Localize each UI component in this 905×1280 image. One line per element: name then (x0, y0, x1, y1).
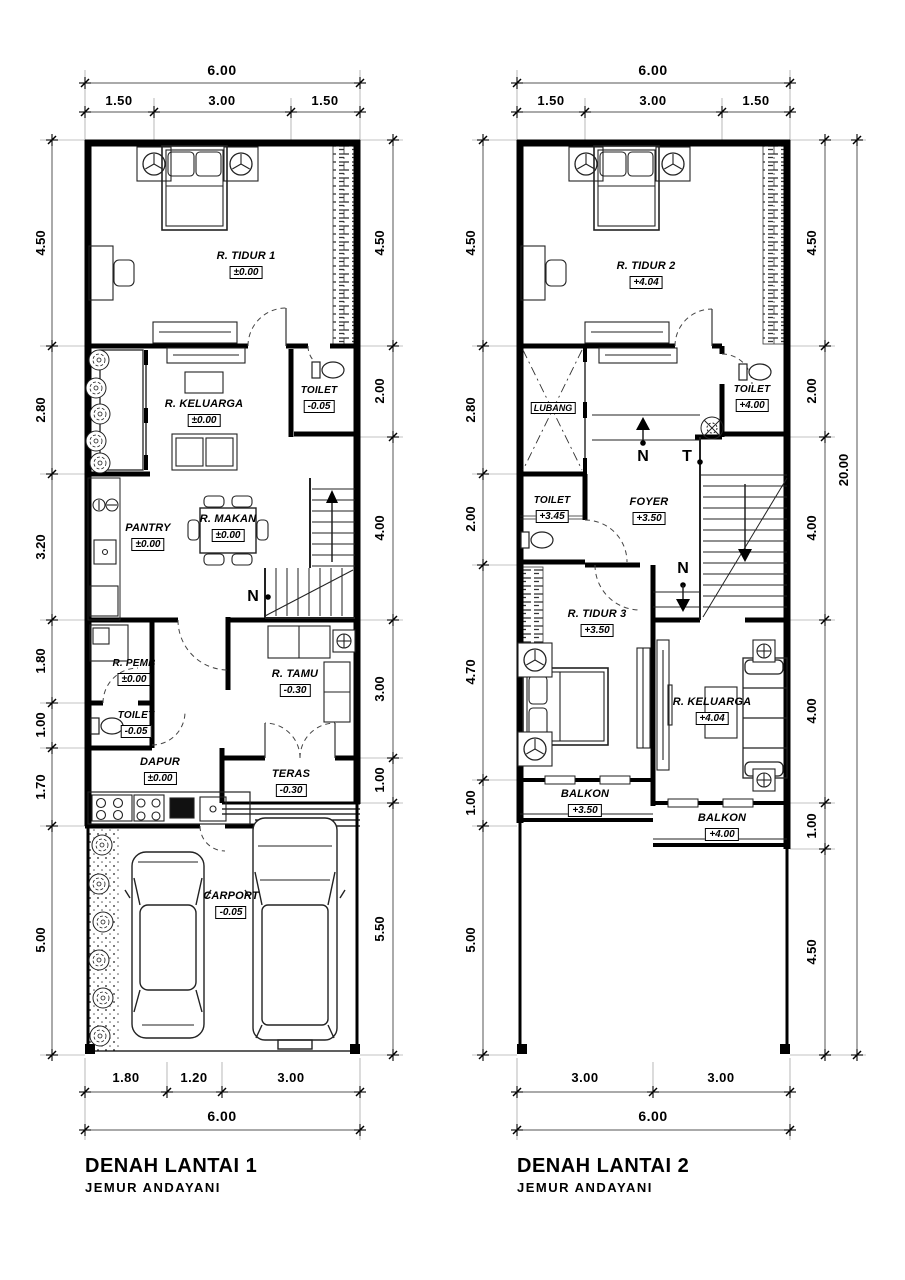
dim-label: 4.00 (373, 496, 387, 560)
kitchen-counter (88, 792, 250, 824)
up-arrow (636, 417, 650, 430)
room-label-tidur2: R. TIDUR 2 +4.04 (617, 260, 676, 290)
room-label-balkon-kanan: BALKON +4.00 (698, 812, 746, 842)
room-label-tidur3: R. TIDUR 3 +3.50 (568, 608, 627, 638)
dim-label: 6.00 (621, 1108, 685, 1124)
car-sedan-icon (125, 852, 211, 1038)
dim-label: 1.50 (519, 93, 583, 108)
dim-label: 3.00 (373, 657, 387, 721)
shrub-icon (92, 835, 112, 855)
dim-label: 1.50 (87, 93, 151, 108)
dim-label: 1.80 (34, 629, 48, 693)
room-label-makan: R. MAKAN ±0.00 (200, 513, 257, 543)
dim-label: 4.50 (805, 211, 819, 275)
plan2-title: DENAH LANTAI 2 (517, 1155, 689, 1178)
dim-label: 1.80 (94, 1070, 158, 1085)
plant-icon (89, 350, 109, 370)
room-label-toilet-bawah: TOILET -0.05 (118, 710, 155, 739)
plan1-stairs (265, 478, 355, 618)
room-label-carport: CARPORT -0.05 (203, 890, 259, 920)
speaker-icon (753, 640, 775, 662)
wardrobe-icon (585, 322, 677, 363)
plan1-title: DENAH LANTAI 1 (85, 1155, 257, 1178)
chair-icon (114, 260, 134, 286)
room-label-dapur: DAPUR ±0.00 (140, 756, 180, 786)
room-label-pemb: R. PEMB ±0.00 (112, 658, 155, 687)
dim-label: 6.00 (621, 62, 685, 78)
room-label-foyer: FOYER +3.50 (630, 496, 669, 526)
room-label-keluarga2: R. KELUARGA +4.04 (673, 696, 752, 726)
dim-label: 1.00 (464, 771, 478, 835)
dim-label: 2.00 (373, 359, 387, 423)
dim-label: 1.70 (34, 755, 48, 819)
dim-label: 3.00 (553, 1070, 617, 1085)
ceiling-fan-icon (656, 147, 690, 181)
dim-label: 20.00 (837, 438, 851, 502)
dim-label: 5.00 (464, 908, 478, 972)
dim-label: 4.50 (34, 211, 48, 275)
wardrobe-icon (637, 648, 650, 748)
pantry-counter (88, 478, 120, 620)
room-label-tidur1: R. TIDUR 1 ±0.00 (217, 250, 276, 280)
dim-label: 1.20 (162, 1070, 226, 1085)
north-marker: N (247, 588, 259, 606)
dim-label: 3.00 (190, 93, 254, 108)
room-label-balkon-kiri: BALKON +3.50 (561, 788, 609, 818)
dim-label: 5.50 (373, 897, 387, 961)
ceiling-fan-icon (518, 732, 552, 766)
shrub-icon (89, 950, 109, 970)
north-marker: N (637, 448, 649, 466)
shrub-icon (89, 874, 109, 894)
north-point (265, 594, 271, 600)
tv-cabinet-icon (657, 640, 672, 770)
room-label-toilet-kiri: TOILET +3.45 (534, 495, 571, 524)
shrub-icon (93, 912, 113, 932)
dim-label: 1.00 (373, 748, 387, 812)
room-label-keluarga: R. KELUARGA ±0.00 (165, 398, 244, 428)
vent-strip (521, 567, 543, 647)
plant-icon (86, 378, 106, 398)
t-marker: T (682, 448, 692, 466)
down-arrow (676, 599, 690, 612)
shrub-icon (90, 1026, 110, 1046)
speaker-icon (333, 630, 355, 652)
wardrobe-icon (153, 322, 245, 363)
bed-icon (594, 146, 659, 230)
room-label-toilet-atas: TOILET -0.05 (301, 385, 338, 414)
shrub-icon (93, 988, 113, 1008)
dim-label: 3.20 (34, 515, 48, 579)
stair-up-arrow (326, 490, 338, 503)
dim-label: 2.80 (34, 378, 48, 442)
table-icon (185, 372, 223, 393)
room-label-pantry: PANTRY ±0.00 (125, 522, 170, 552)
room-label-lubang: LUBANG (531, 398, 576, 416)
dim-label: 6.00 (190, 62, 254, 78)
dim-label: 4.00 (805, 496, 819, 560)
dim-label: 5.00 (34, 908, 48, 972)
dim-label: 4.00 (805, 679, 819, 743)
garden-strip (89, 827, 121, 1051)
dim-label: 3.00 (689, 1070, 753, 1085)
dim-label: 4.50 (464, 211, 478, 275)
floorplan-sheet: 6.00 1.50 3.00 1.50 4.50 2.80 3.20 1.80 … (0, 0, 905, 1280)
dim-label: 4.50 (373, 211, 387, 275)
dim-label: 2.80 (464, 378, 478, 442)
toilet-icon (312, 362, 344, 378)
dim-label: 1.00 (34, 693, 48, 757)
dim-label: 2.00 (805, 359, 819, 423)
desk-icon (521, 246, 545, 300)
toilet-icon (521, 532, 553, 548)
toilet-icon (739, 364, 771, 380)
dim-label: 4.70 (464, 640, 478, 704)
ceiling-fan-icon (224, 147, 258, 181)
ceiling-fan-icon (518, 643, 552, 677)
plan1-subtitle: JEMUR ANDAYANI (85, 1180, 221, 1195)
room-label-toilet-atas2: TOILET +4.00 (734, 384, 771, 413)
floorplan-linework (0, 0, 905, 1280)
plant-icon (90, 404, 110, 424)
single-bed-icon (90, 625, 128, 661)
speaker-icon (753, 769, 775, 791)
plan2-stairs (592, 415, 787, 620)
chair-icon (546, 260, 566, 286)
dim-label: 2.00 (464, 487, 478, 551)
bed-icon (162, 146, 227, 230)
dim-label: 3.00 (259, 1070, 323, 1085)
dim-label: 3.00 (621, 93, 685, 108)
plan2-subtitle: JEMUR ANDAYANI (517, 1180, 653, 1195)
dim-label: 1.00 (805, 794, 819, 858)
dim-label: 4.50 (805, 920, 819, 984)
car-suv-icon (245, 818, 345, 1049)
dim-label: 1.50 (724, 93, 788, 108)
sofa-icon (172, 434, 237, 470)
room-label-tamu: R. TAMU -0.30 (272, 668, 318, 698)
room-label-teras: TERAS -0.30 (272, 768, 310, 798)
desk-icon (89, 246, 113, 300)
dim-label: 6.00 (190, 1108, 254, 1124)
north-marker: N (677, 560, 689, 578)
dim-label: 1.50 (293, 93, 357, 108)
plant-icon (90, 453, 110, 473)
plant-icon (86, 431, 106, 451)
